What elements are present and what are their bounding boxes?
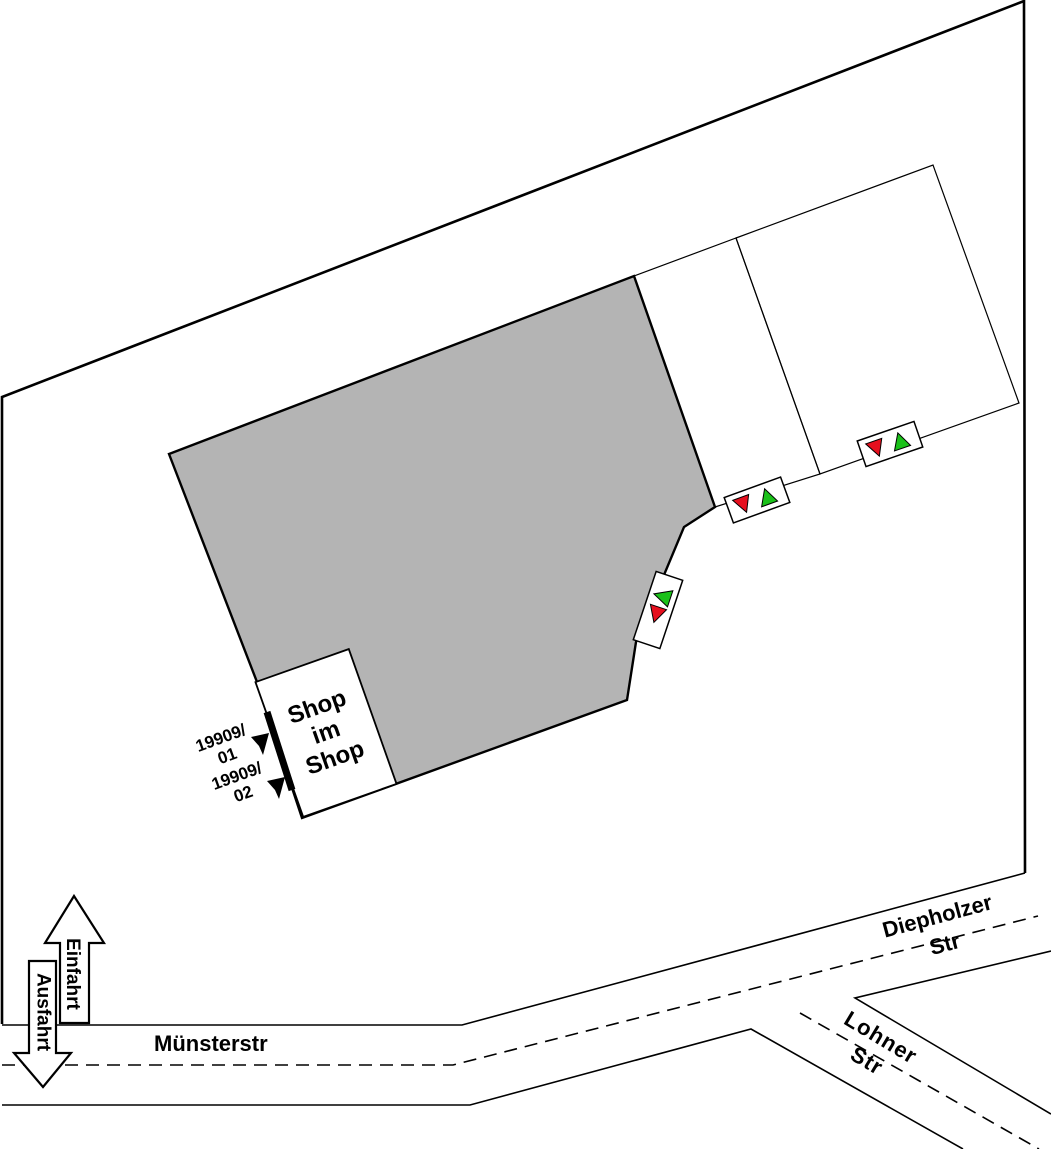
- parcel-east: [736, 165, 1019, 474]
- parcel-marker-east[interactable]: [857, 421, 923, 466]
- parcel-marker-west[interactable]: [724, 477, 790, 523]
- entrance-label: Einfahrt: [61, 924, 83, 1024]
- street-label-muensterstr: Münsterstr: [154, 1031, 268, 1057]
- site-plan-drawing: [0, 0, 1051, 1149]
- exit-label: Ausfahrt: [32, 959, 54, 1066]
- site-plan: Münsterstr Diepholzer Str Lohner Str Ein…: [0, 0, 1051, 1149]
